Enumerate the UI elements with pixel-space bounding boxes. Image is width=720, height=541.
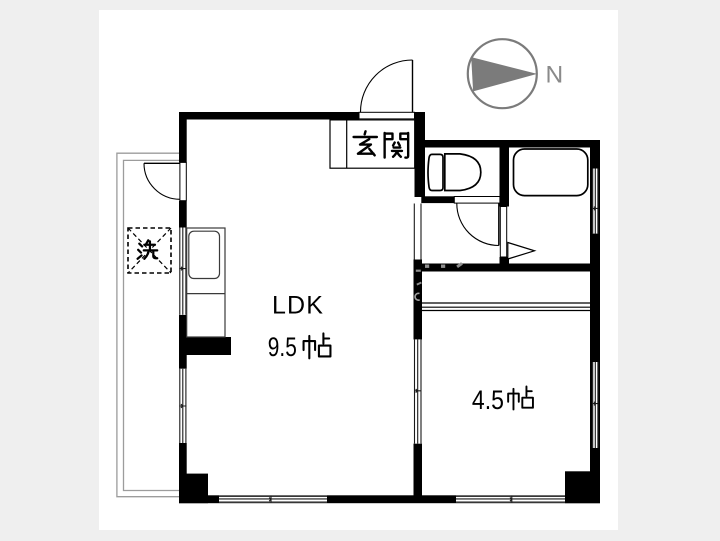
svg-text:N: N [546, 62, 564, 89]
svg-text:4.5: 4.5 [472, 385, 504, 415]
svg-text:9.5: 9.5 [268, 332, 297, 362]
svg-text:LDK: LDK [272, 292, 324, 320]
